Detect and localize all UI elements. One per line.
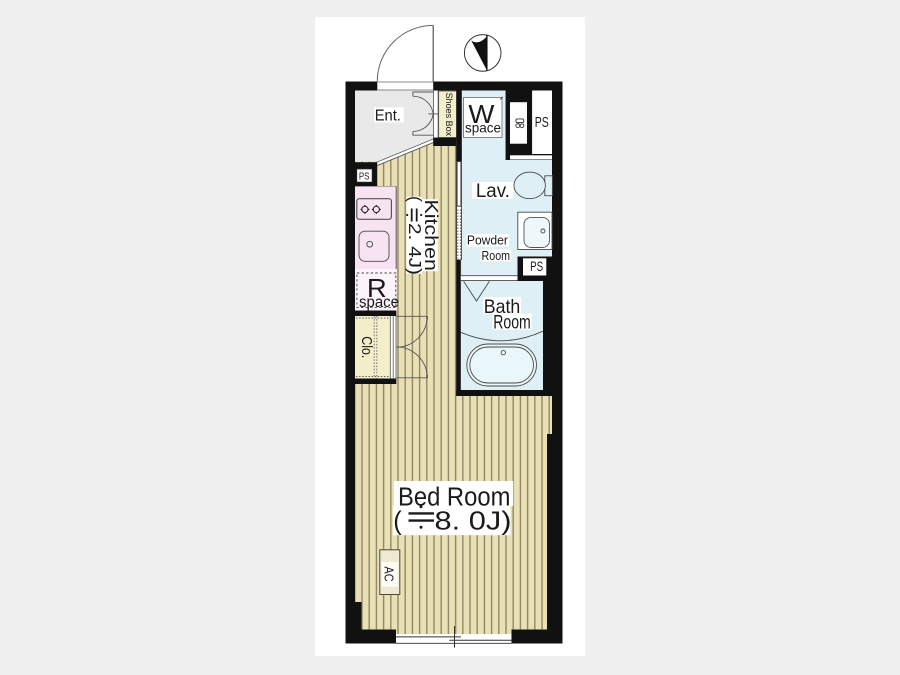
svg-text:Clo.: Clo.	[358, 336, 375, 358]
svg-text:Ent.: Ent.	[375, 107, 401, 124]
svg-text:PS: PS	[535, 115, 549, 131]
svg-text:Lav.: Lav.	[476, 181, 510, 202]
svg-text:AC: AC	[381, 567, 396, 582]
svg-text:space: space	[359, 294, 399, 311]
svg-text:Powder: Powder	[467, 233, 509, 248]
svg-text:Room: Room	[482, 248, 511, 263]
svg-text:space: space	[465, 120, 501, 136]
svg-text:8. 0J): 8. 0J)	[435, 508, 512, 536]
svg-text:2. 4J): 2. 4J)	[405, 223, 425, 275]
svg-text:Room: Room	[493, 311, 531, 333]
svg-text:PS: PS	[359, 171, 370, 183]
svg-text:(: (	[405, 196, 425, 202]
svg-text:Shoes Box: Shoes Box	[444, 93, 454, 137]
svg-text:PS: PS	[530, 258, 543, 274]
svg-text:(: (	[393, 508, 402, 536]
